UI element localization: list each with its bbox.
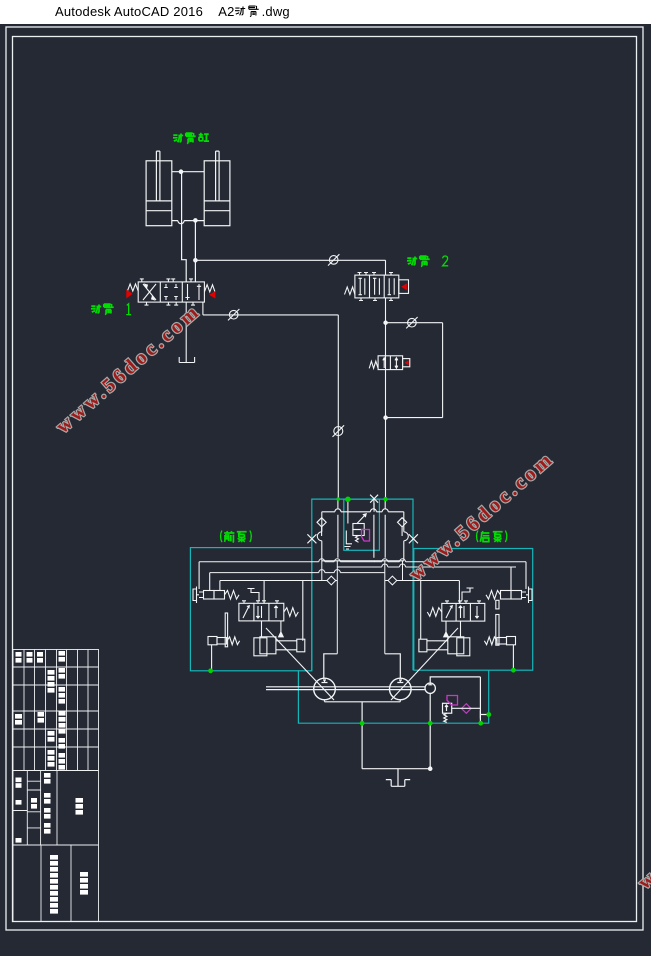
svg-text:www.56doc.com: www.56doc.com — [405, 447, 558, 585]
svg-text:www.56doc.com: www.56doc.com — [52, 300, 205, 438]
